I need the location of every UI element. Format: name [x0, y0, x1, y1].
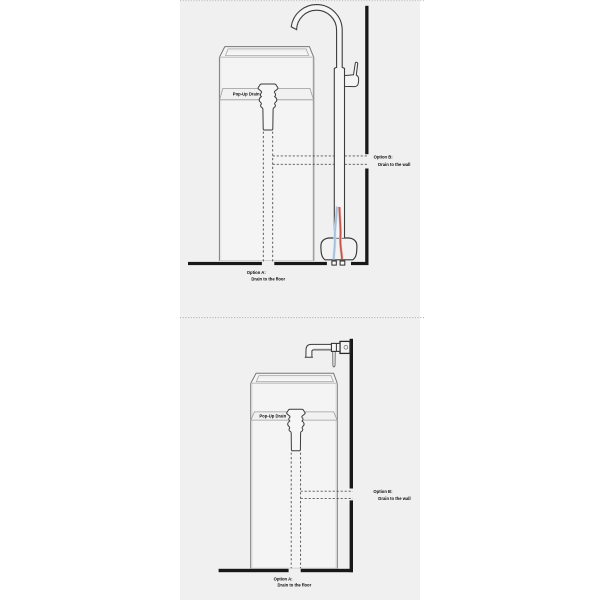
svg-text:Drain to the wall: Drain to the wall	[378, 162, 410, 167]
svg-text:Option B:: Option B:	[373, 489, 392, 494]
svg-text:Drain to the floor: Drain to the floor	[278, 583, 312, 588]
svg-text:Option A:: Option A:	[247, 270, 266, 275]
svg-text:Option B:: Option B:	[374, 155, 393, 160]
svg-text:Pop-Up Drain: Pop-Up Drain	[233, 91, 260, 96]
svg-text:Pop-Up Drain: Pop-Up Drain	[259, 414, 286, 419]
svg-text:Drain to the wall: Drain to the wall	[378, 496, 410, 501]
svg-text:Option A:: Option A:	[274, 576, 293, 581]
svg-text:Drain to the floor: Drain to the floor	[251, 276, 285, 281]
